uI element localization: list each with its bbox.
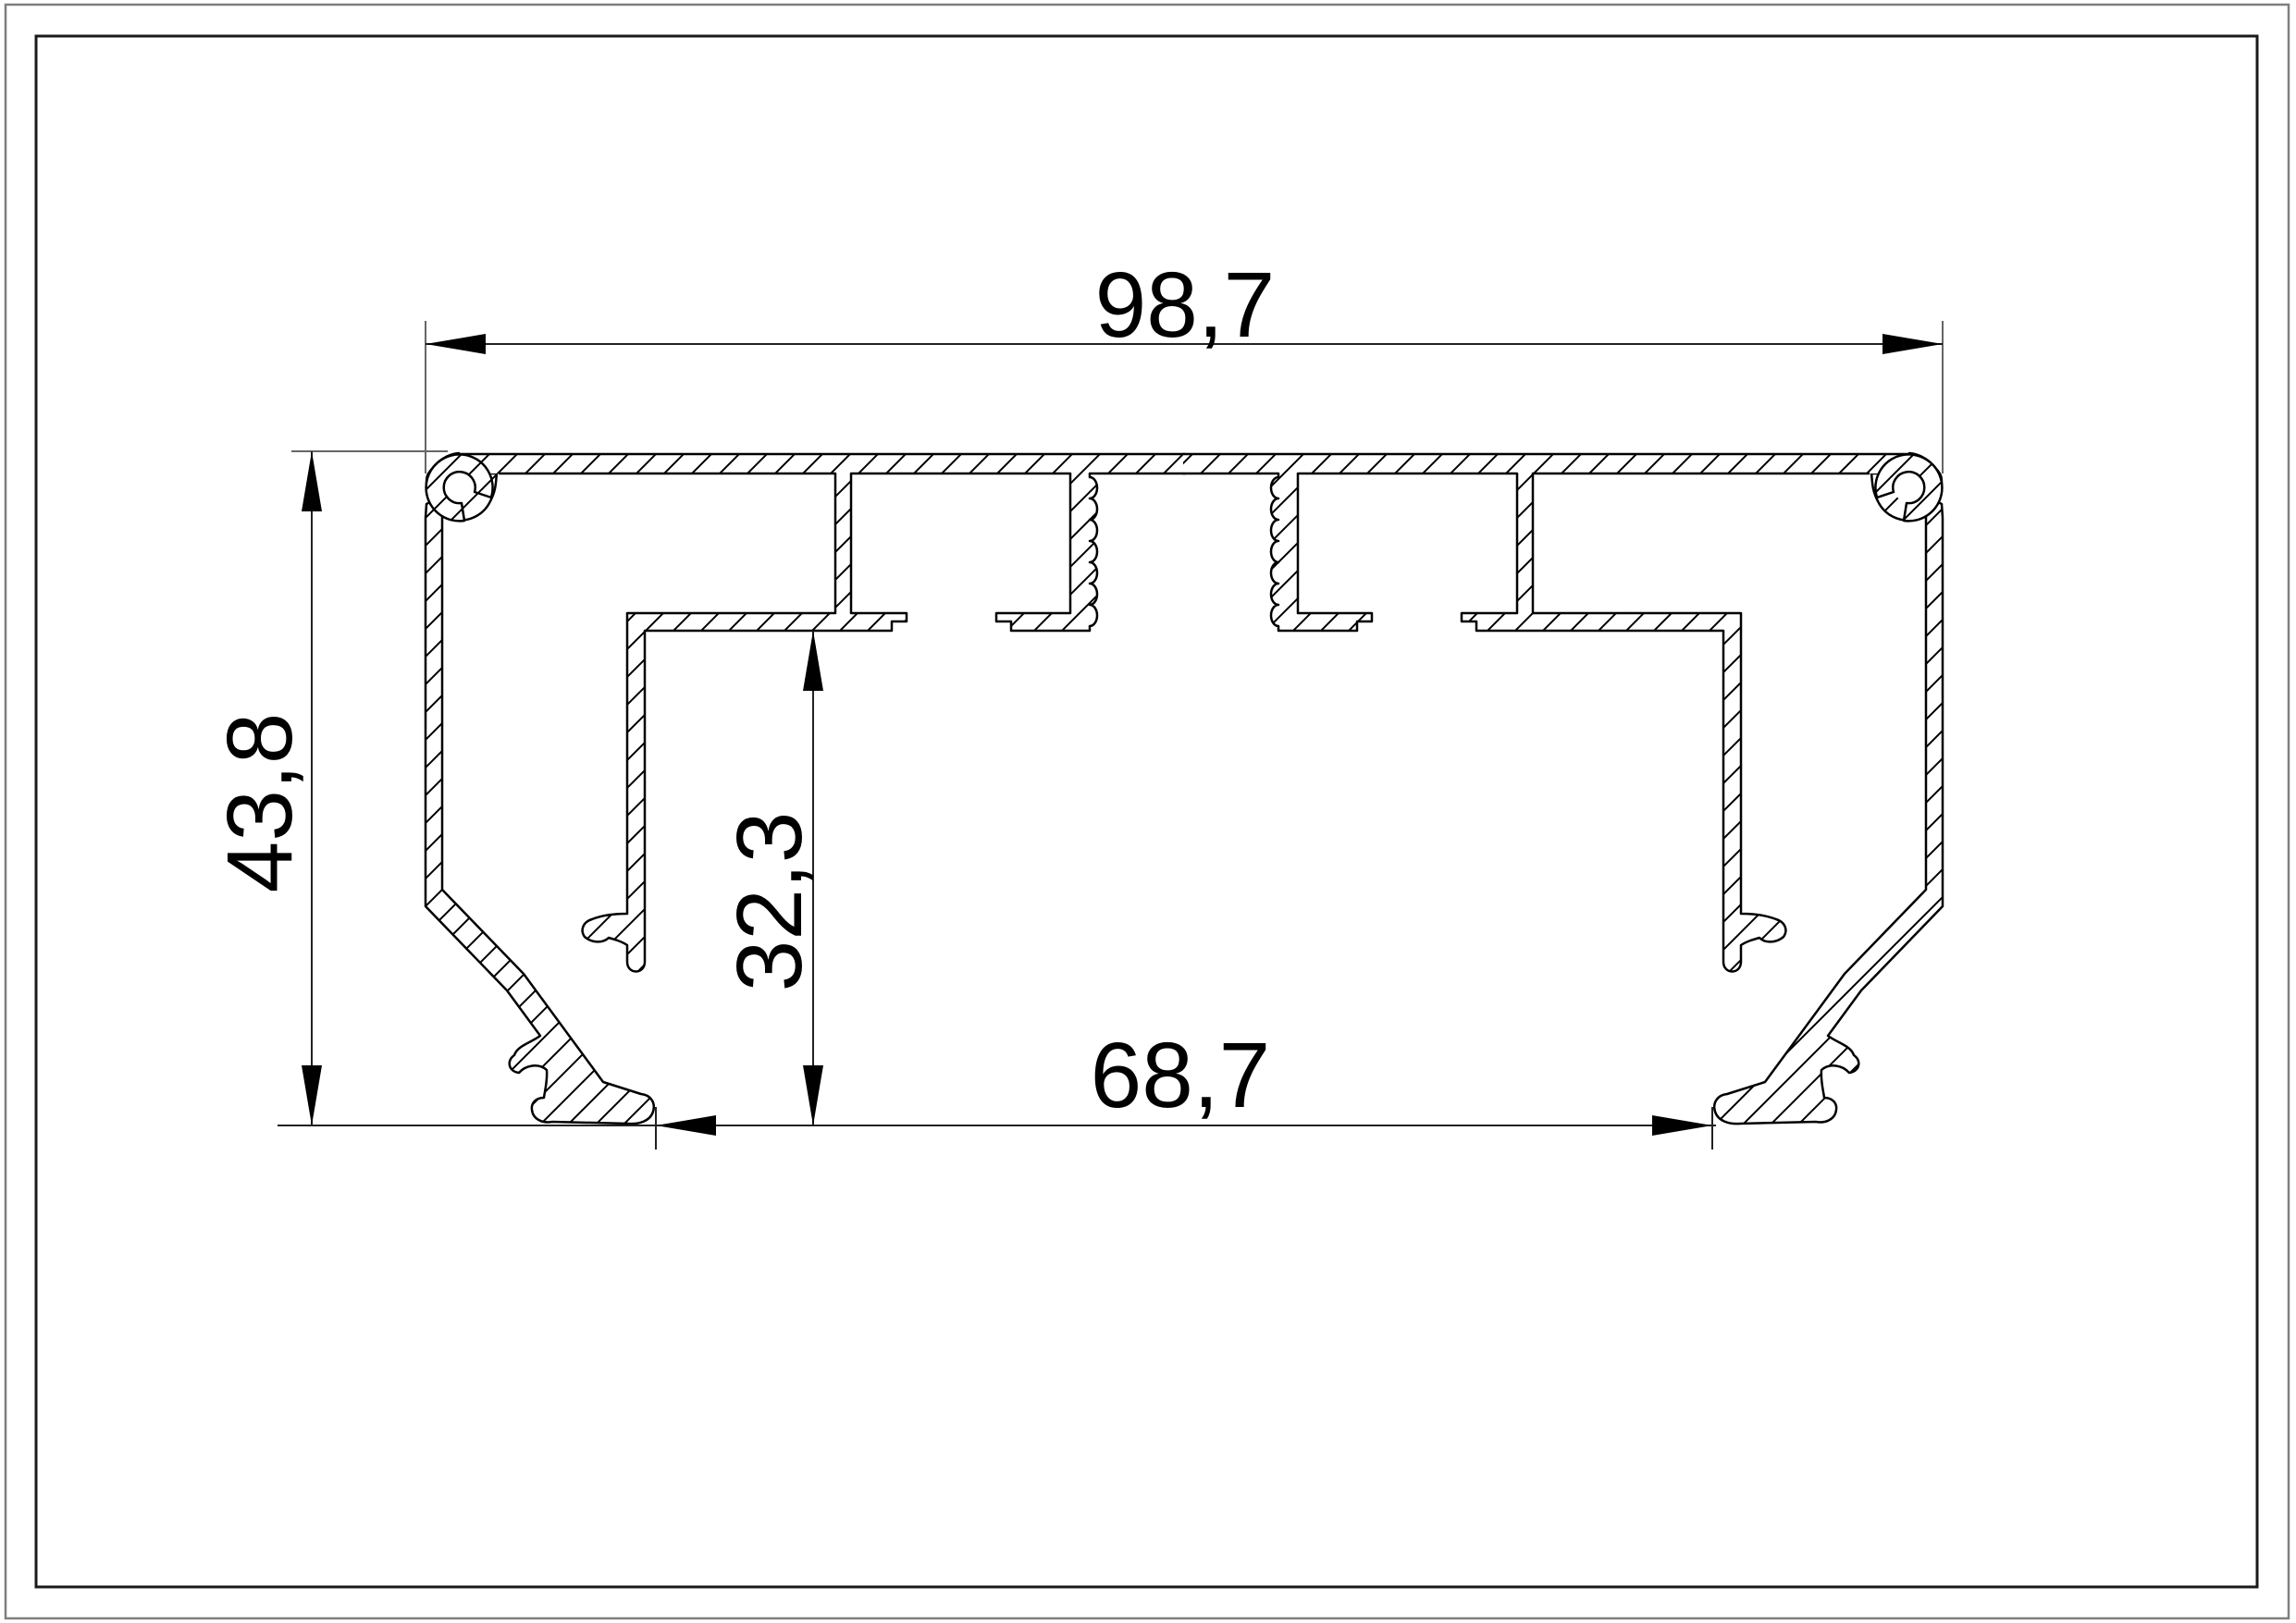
dimension-height-left: 43,8 bbox=[208, 451, 322, 1125]
right-serrated-wall bbox=[1271, 467, 1372, 631]
profile-left-half bbox=[426, 453, 1185, 1124]
profile-right-half bbox=[1183, 453, 1943, 1124]
dimension-height-inner: 32,3 bbox=[718, 631, 823, 1125]
arrow-up-icon bbox=[803, 631, 823, 691]
dimension-width-top: 98,7 bbox=[426, 253, 1943, 357]
dimension-width-bottom: 68,7 bbox=[278, 1024, 1716, 1150]
dim-label-width-top: 98,7 bbox=[1095, 253, 1276, 357]
arrow-down-icon bbox=[803, 1065, 823, 1125]
drawing-sheet: 98,7 43,8 32,3 68,7 bbox=[0, 0, 2296, 1623]
left-serrated-wall bbox=[996, 467, 1097, 631]
dim-label-width-bottom: 68,7 bbox=[1091, 1024, 1271, 1127]
arrow-down-icon bbox=[302, 1065, 322, 1125]
frame-outer bbox=[6, 5, 2289, 1618]
cad-drawing: 98,7 43,8 32,3 68,7 bbox=[0, 0, 2296, 1623]
arrow-left-icon bbox=[426, 334, 486, 354]
arrow-left-icon bbox=[656, 1115, 716, 1136]
dim-label-height-left: 43,8 bbox=[208, 713, 312, 893]
right-outer-wall-strut-foot bbox=[1714, 453, 1943, 1124]
arrow-right-icon bbox=[1882, 334, 1943, 354]
dim-label-height-inner: 32,3 bbox=[718, 812, 821, 992]
right-hanger-ledge bbox=[1462, 467, 1785, 972]
left-outer-wall-strut-foot bbox=[426, 453, 654, 1124]
arrow-right-icon bbox=[1652, 1115, 1712, 1136]
arrow-up-icon bbox=[302, 451, 322, 511]
